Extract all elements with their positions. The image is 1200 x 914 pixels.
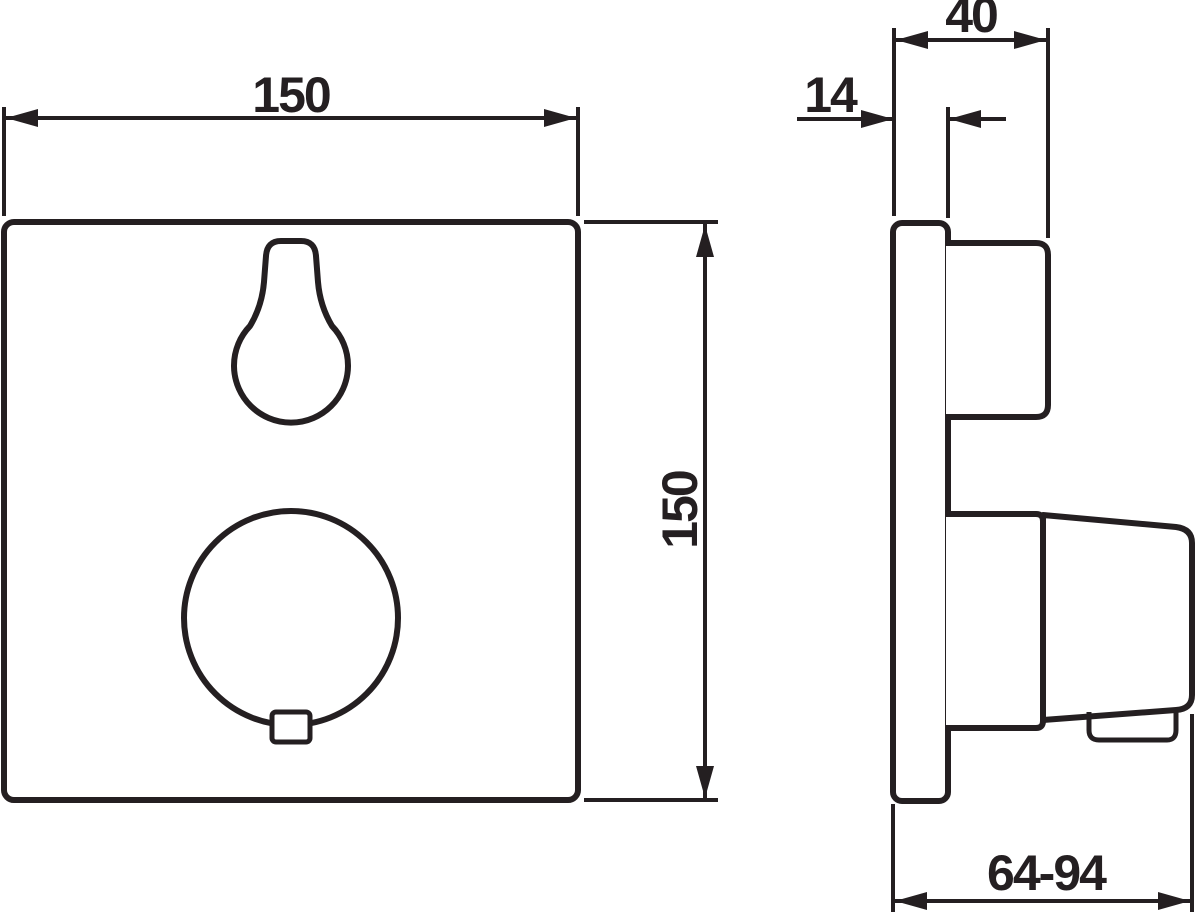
dial-knob-outline: [184, 511, 398, 725]
dim-front-width: 150: [4, 67, 578, 216]
arrowhead-left: [895, 892, 927, 910]
lever-handle-side-outline: [946, 243, 1048, 417]
arrowhead-left: [861, 110, 893, 128]
arrowhead-left: [6, 109, 38, 127]
dimension-label: 150: [252, 67, 330, 123]
arrowhead-right: [1158, 892, 1190, 910]
dial-indicator-tab: [272, 712, 310, 742]
arrowhead-right: [544, 109, 576, 127]
dimension-label: 40: [945, 0, 997, 43]
arrowhead-top: [696, 225, 714, 257]
arrowhead-right: [949, 110, 981, 128]
dim-front-height: 150: [584, 222, 718, 800]
front-view: [4, 222, 578, 800]
arrowhead-left: [896, 31, 928, 49]
knob-grip-side-outline: [1043, 515, 1192, 720]
dimension-label: 14: [804, 67, 858, 123]
dim-plate-thickness: 14: [797, 67, 1006, 218]
faucet-dimension-drawing: 150 150 40 14 64-94: [0, 0, 1200, 914]
arrowhead-right: [1014, 31, 1046, 49]
side-view: [893, 223, 1192, 801]
arrowhead-bottom: [696, 766, 714, 798]
dimension-label: 150: [652, 471, 708, 549]
technical-drawing-canvas: 150 150 40 14 64-94: [0, 0, 1200, 914]
wall-plate-side-outline: [893, 223, 948, 801]
lever-handle-outline: [234, 241, 348, 423]
dimension-label: 64-94: [987, 845, 1107, 901]
knob-base-side-outline: [946, 514, 1043, 728]
